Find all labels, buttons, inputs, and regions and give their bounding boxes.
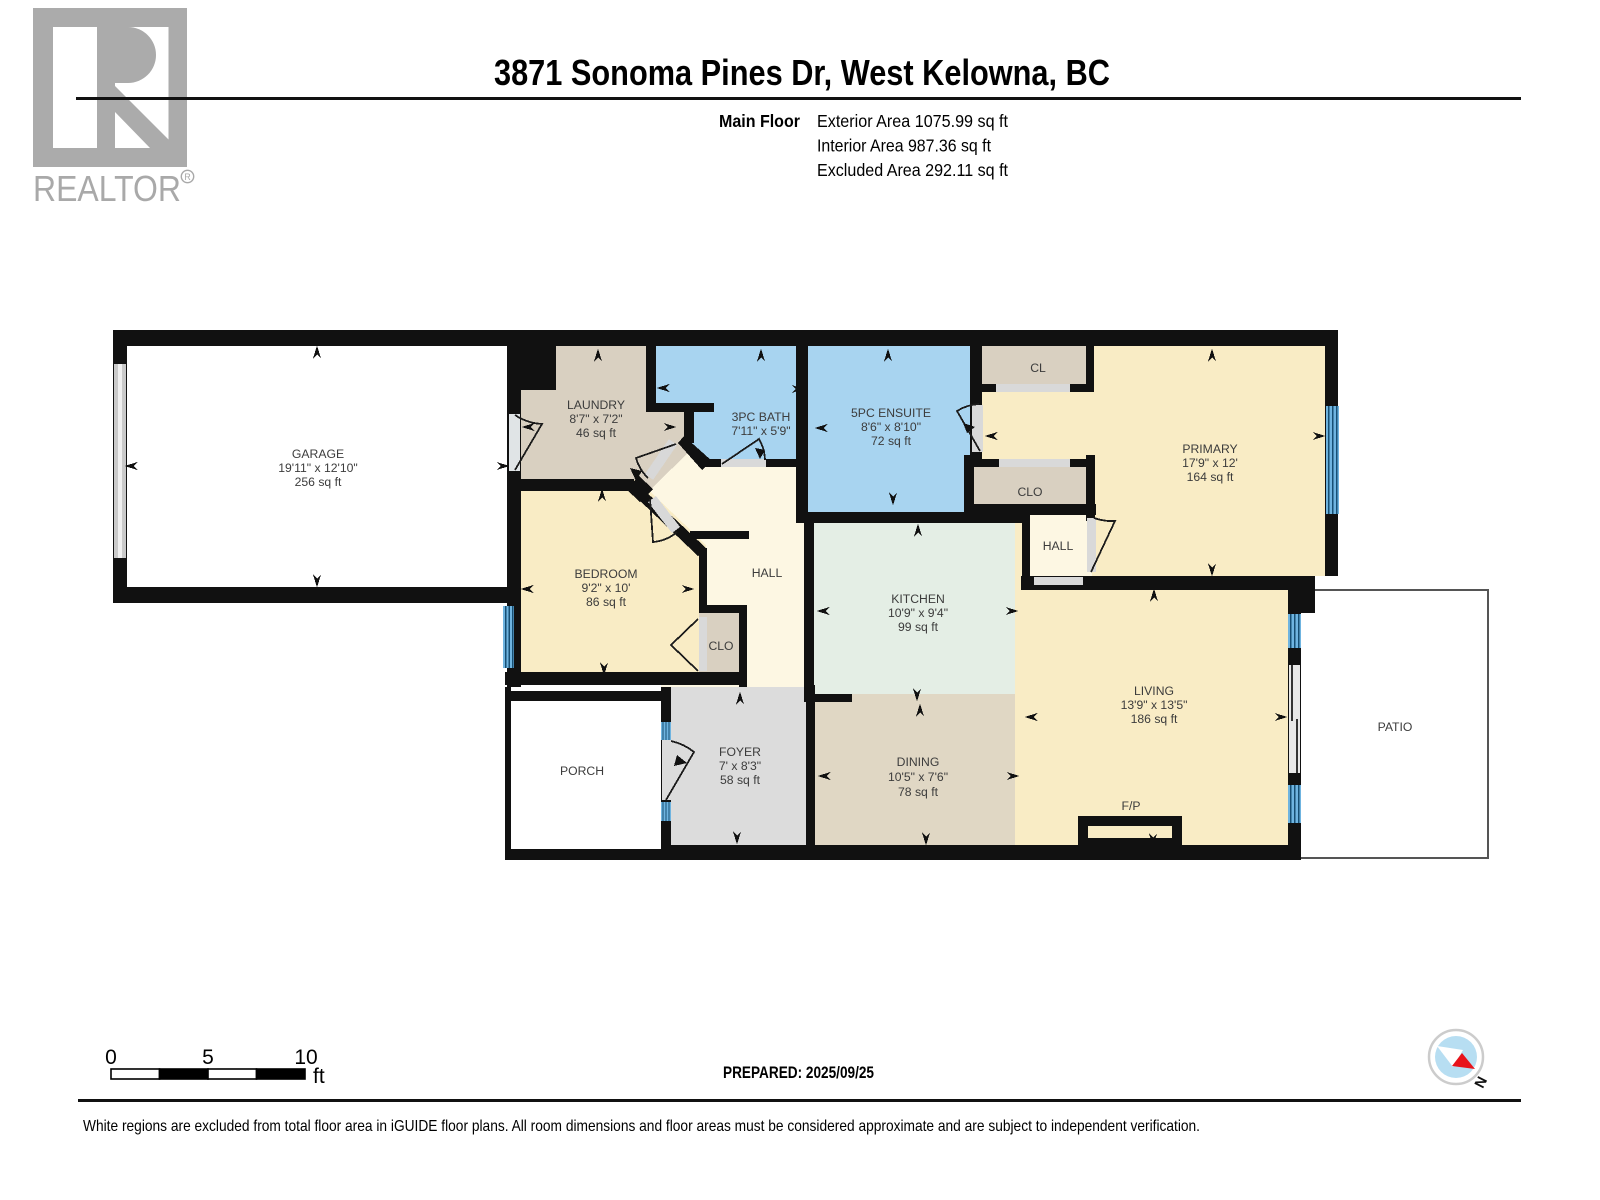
svg-text:CLO: CLO [708, 639, 733, 653]
svg-text:17'9" x 12': 17'9" x 12' [1182, 456, 1238, 470]
svg-text:3871 Sonoma Pines Dr, West Kel: 3871 Sonoma Pines Dr, West Kelowna, BC [494, 52, 1110, 93]
svg-text:Exterior Area 1075.99 sq ft: Exterior Area 1075.99 sq ft [817, 111, 1008, 131]
svg-text:HALL: HALL [1043, 539, 1074, 553]
svg-text:5PC ENSUITE: 5PC ENSUITE [851, 406, 931, 420]
svg-text:3PC BATH: 3PC BATH [732, 410, 791, 424]
svg-text:7' x 8'3": 7' x 8'3" [719, 759, 761, 773]
svg-text:256 sq ft: 256 sq ft [295, 475, 342, 489]
svg-text:164 sq ft: 164 sq ft [1187, 470, 1234, 484]
svg-text:Interior Area 987.36 sq ft: Interior Area 987.36 sq ft [817, 136, 991, 156]
svg-text:Main Floor: Main Floor [719, 111, 800, 131]
svg-text:LAUNDRY: LAUNDRY [567, 398, 625, 412]
svg-text:0: 0 [105, 1046, 117, 1069]
svg-text:99 sq ft: 99 sq ft [898, 620, 939, 634]
svg-text:DINING: DINING [897, 755, 940, 769]
svg-text:PREPARED: 2025/09/25: PREPARED: 2025/09/25 [723, 1063, 874, 1082]
svg-text:58 sq ft: 58 sq ft [720, 773, 761, 787]
svg-text:5: 5 [202, 1046, 214, 1069]
svg-text:PRIMARY: PRIMARY [1182, 442, 1237, 456]
svg-text:46 sq ft: 46 sq ft [576, 426, 617, 440]
svg-text:9'2" x 10': 9'2" x 10' [582, 581, 631, 595]
svg-text:10'9" x 9'4": 10'9" x 9'4" [888, 606, 948, 620]
svg-text:F/P: F/P [1122, 799, 1141, 813]
svg-text:KITCHEN: KITCHEN [891, 592, 945, 606]
svg-text:White regions are excluded fro: White regions are excluded from total fl… [83, 1118, 1200, 1135]
svg-text:186 sq ft: 186 sq ft [1131, 712, 1178, 726]
svg-text:LIVING: LIVING [1134, 684, 1174, 698]
svg-text:8'7" x 7'2": 8'7" x 7'2" [569, 412, 622, 426]
svg-text:78 sq ft: 78 sq ft [898, 785, 939, 799]
svg-text:CLO: CLO [1017, 485, 1042, 499]
svg-text:10'5" x 7'6": 10'5" x 7'6" [888, 770, 948, 784]
svg-text:PATIO: PATIO [1378, 720, 1413, 734]
svg-text:7'11" x 5'9": 7'11" x 5'9" [731, 424, 790, 438]
svg-text:Excluded Area 292.11 sq ft: Excluded Area 292.11 sq ft [817, 160, 1008, 180]
svg-text:HALL: HALL [752, 566, 783, 580]
svg-text:86 sq ft: 86 sq ft [586, 595, 627, 609]
svg-text:8'6" x 8'10": 8'6" x 8'10" [861, 420, 921, 434]
svg-text:BEDROOM: BEDROOM [575, 567, 638, 581]
svg-text:13'9" x 13'5": 13'9" x 13'5" [1121, 698, 1188, 712]
svg-text:FOYER: FOYER [719, 745, 761, 759]
svg-text:CL: CL [1030, 361, 1046, 375]
svg-text:72 sq ft: 72 sq ft [871, 434, 912, 448]
svg-text:GARAGE: GARAGE [292, 447, 344, 461]
svg-text:ft: ft [313, 1065, 325, 1088]
svg-text:19'11" x 12'10": 19'11" x 12'10" [278, 461, 358, 475]
svg-text:R: R [184, 172, 191, 182]
svg-text:REALTOR: REALTOR [33, 168, 181, 209]
svg-text:PORCH: PORCH [560, 764, 604, 778]
